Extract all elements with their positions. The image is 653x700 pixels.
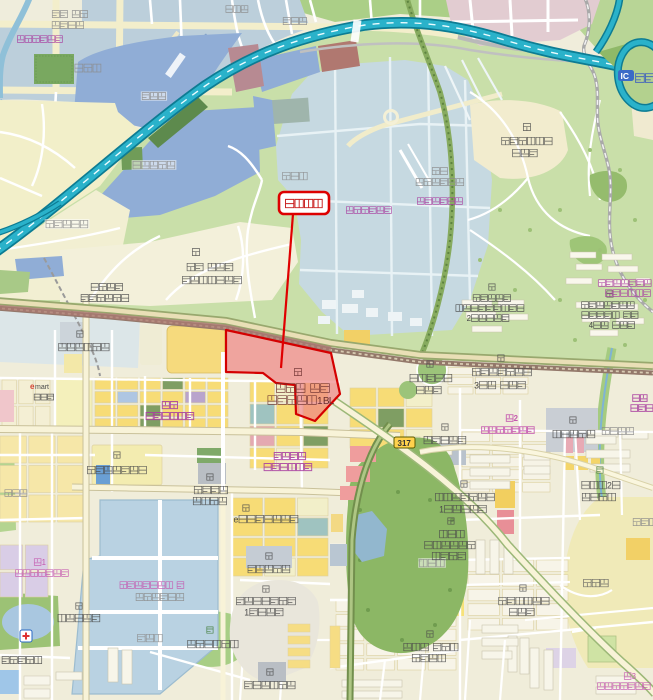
svg-text:4: 4: [589, 321, 594, 330]
svg-text:2: 2: [467, 314, 471, 323]
svg-text:3: 3: [474, 380, 479, 390]
svg-text:1: 1: [244, 607, 249, 617]
svg-text:e: e: [234, 514, 239, 524]
svg-text:mart: mart: [35, 384, 49, 391]
svg-text:317: 317: [398, 439, 412, 448]
svg-text:1: 1: [439, 504, 444, 514]
svg-text:2: 2: [514, 414, 519, 423]
svg-text:1: 1: [42, 558, 46, 567]
svg-text:IC: IC: [621, 71, 630, 81]
svg-text:3: 3: [632, 672, 636, 681]
svg-text:L: L: [329, 396, 335, 407]
svg-text:2: 2: [607, 480, 612, 490]
